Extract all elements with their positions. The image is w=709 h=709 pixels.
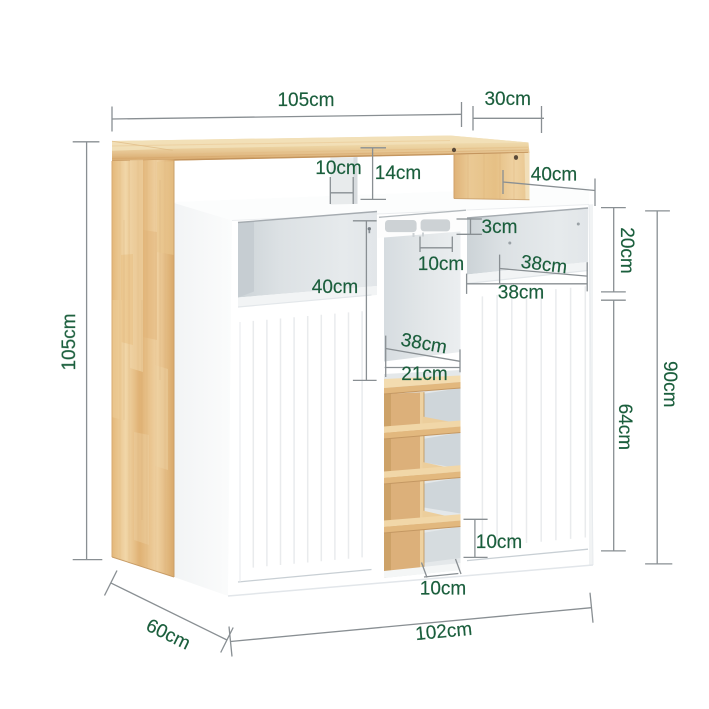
svg-text:40cm: 40cm — [312, 277, 358, 298]
svg-text:20cm: 20cm — [616, 227, 637, 273]
svg-text:14cm: 14cm — [375, 163, 421, 184]
svg-text:10cm: 10cm — [418, 254, 464, 275]
svg-text:64cm: 64cm — [614, 404, 635, 450]
svg-text:30cm: 30cm — [484, 89, 530, 110]
svg-text:105cm: 105cm — [277, 90, 334, 111]
svg-text:10cm: 10cm — [315, 158, 361, 179]
svg-text:105cm: 105cm — [59, 313, 80, 370]
svg-text:21cm: 21cm — [401, 364, 447, 385]
svg-text:3cm: 3cm — [482, 217, 518, 238]
svg-text:90cm: 90cm — [659, 361, 680, 407]
svg-text:10cm: 10cm — [420, 579, 466, 600]
svg-text:10cm: 10cm — [476, 532, 522, 553]
svg-text:40cm: 40cm — [531, 164, 577, 185]
svg-text:38cm: 38cm — [498, 283, 544, 304]
